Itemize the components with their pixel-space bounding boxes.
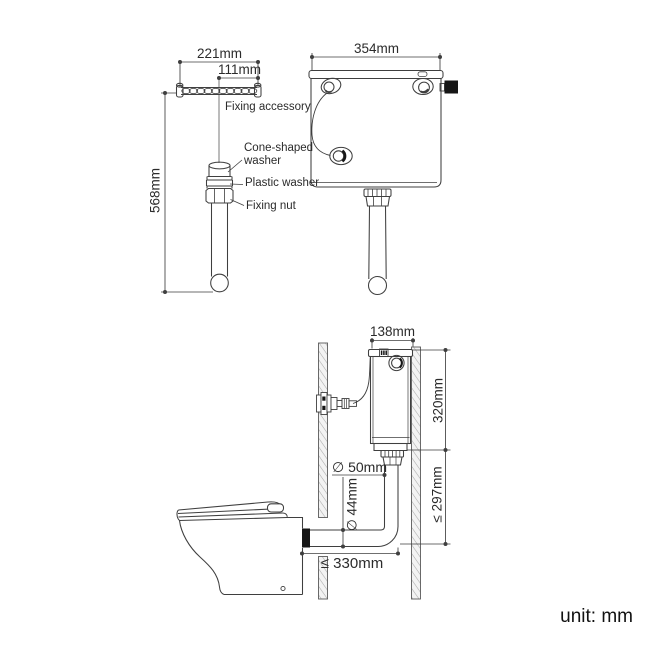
cone-shaped-washer-label: Cone-shaped washer [244, 142, 324, 167]
diagram-line-art [0, 0, 650, 650]
dim-cistern-width-label: 354mm [349, 41, 404, 56]
dim-offset-max-label: ≤ 330mm [312, 556, 392, 571]
fixing-accessory-label: Fixing accessory [225, 101, 311, 114]
flush-pipe-parts [206, 162, 233, 292]
cone-shaped-washer-shape [209, 162, 230, 169]
unit-note: unit: mm [538, 606, 633, 628]
dim-rail-half-width-label: 111mm [212, 62, 267, 77]
toilet-side-profile [177, 502, 303, 595]
dim-drop-max-label: ≤ 297mm [430, 457, 445, 533]
dim-cistern-depth-label: 138mm [365, 324, 420, 339]
dim-pipe-lower-diameter-label: ∅ 44mm [345, 474, 360, 536]
plastic-washer-label: Plastic washer [245, 177, 319, 190]
cistern-outlet-port [330, 147, 352, 164]
dim-pipe-length-label: 568mm [148, 161, 163, 221]
cistern-front-body [309, 71, 443, 188]
technical-diagram-page: 221mm 111mm Fixing accessory 568mm Cone-… [0, 0, 650, 650]
wall-right [412, 347, 421, 599]
inlet-hose [353, 357, 370, 404]
fixing-bolt-hole [281, 586, 285, 590]
pan-connector [302, 529, 310, 548]
plastic-washer-shape [207, 180, 233, 186]
fixing-nut-label: Fixing nut [246, 200, 296, 213]
flush-pipe-shape [212, 203, 228, 277]
wall-left-upper [319, 343, 328, 518]
fixing-nut-shape [206, 189, 233, 204]
cistern-side-view [369, 349, 413, 451]
dim-rail-width-label: 221mm [192, 46, 247, 61]
dim-cistern-height-label: 320mm [431, 373, 446, 429]
seat-hinge [268, 504, 284, 512]
cistern-front-drawing [309, 53, 458, 295]
cistern-side-connector [440, 81, 458, 94]
cistern-front-outlet-fitting [364, 189, 391, 295]
